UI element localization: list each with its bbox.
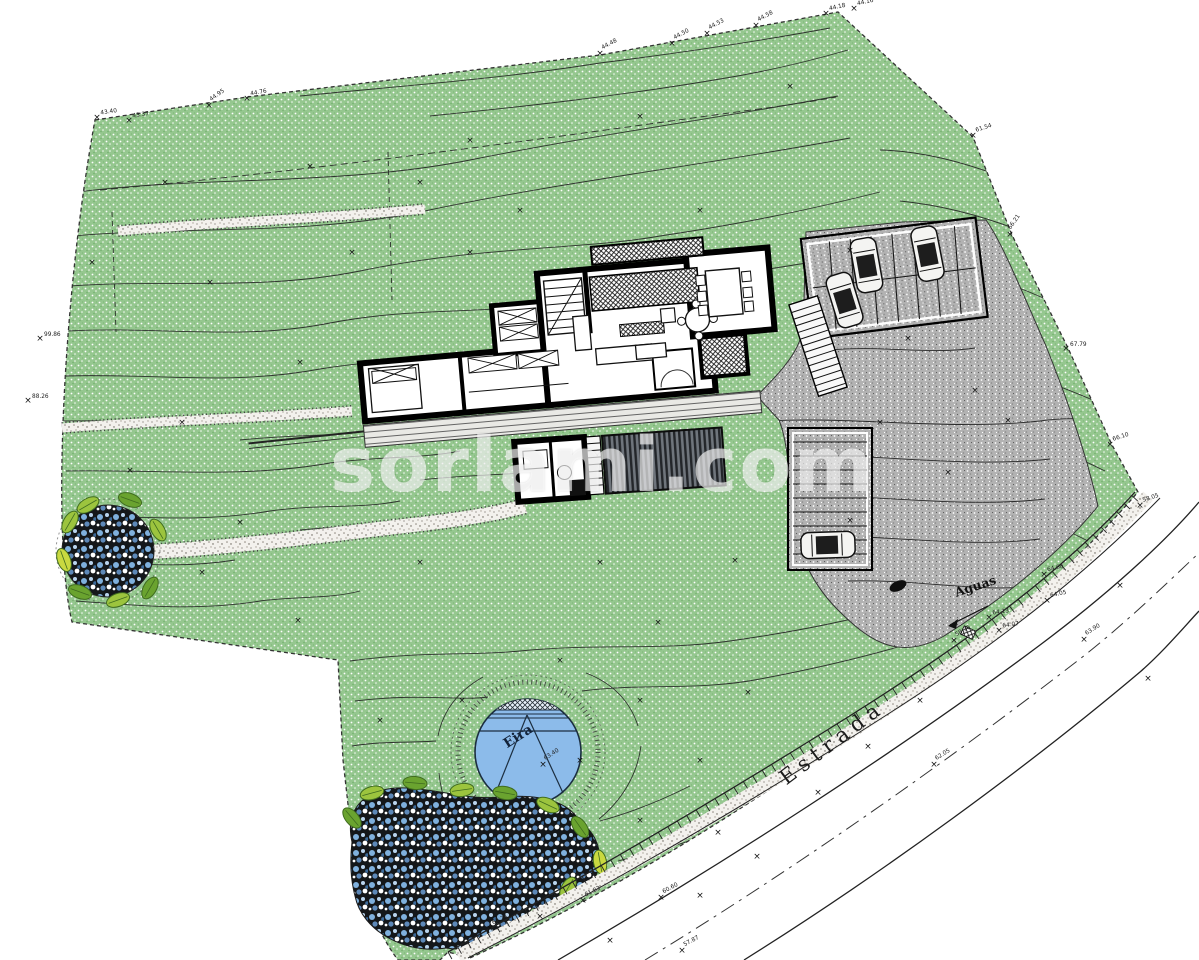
svg-text:×: × (944, 468, 952, 478)
svg-text:×: × (846, 246, 854, 256)
svg-text:×: × (606, 936, 614, 946)
svg-text:63.90: 63.90 (1084, 623, 1102, 637)
svg-text:×: × (536, 912, 544, 922)
svg-text:44.58: 44.58 (757, 10, 775, 23)
svg-text:×: × (1144, 674, 1152, 684)
svg-text:×: × (466, 136, 474, 146)
svg-text:×: × (516, 206, 524, 216)
svg-text:×: × (36, 334, 44, 344)
svg-text:×: × (696, 756, 704, 766)
svg-text:×: × (348, 248, 356, 258)
deck (602, 427, 726, 493)
svg-text:×: × (126, 466, 134, 476)
svg-text:×: × (636, 696, 644, 706)
svg-text:×: × (731, 556, 739, 566)
svg-text:×: × (236, 518, 244, 528)
svg-text:×: × (971, 386, 979, 396)
svg-text:×: × (696, 206, 704, 216)
svg-text:×: × (294, 616, 302, 626)
svg-text:67.79: 67.79 (1070, 342, 1087, 348)
svg-text:×: × (1006, 230, 1014, 240)
svg-text:×: × (596, 558, 604, 568)
svg-text:×: × (198, 568, 206, 578)
svg-text:×: × (88, 258, 96, 268)
car-icon (801, 531, 856, 559)
svg-text:×: × (296, 358, 304, 368)
svg-text:×: × (1062, 344, 1070, 354)
svg-text:×: × (846, 516, 854, 526)
dining-table (705, 268, 743, 317)
svg-text:×: × (904, 334, 912, 344)
svg-text:×: × (1116, 581, 1124, 591)
svg-text:×: × (376, 716, 384, 726)
svg-text:×: × (744, 688, 752, 698)
svg-text:×: × (306, 162, 314, 172)
svg-text:×: × (24, 396, 32, 406)
svg-text:44.16: 44.16 (857, 0, 875, 7)
svg-text:44.18: 44.18 (829, 3, 847, 12)
svg-text:×: × (161, 178, 169, 188)
svg-text:64.07: 64.07 (1002, 621, 1020, 629)
svg-text:×: × (786, 82, 794, 92)
svg-text:×: × (696, 891, 704, 901)
svg-text:×: × (636, 112, 644, 122)
svg-text:44.48: 44.48 (601, 38, 619, 51)
svg-text:×: × (985, 613, 993, 623)
svg-text:44.95: 44.95 (209, 88, 226, 103)
svg-text:×: × (125, 116, 133, 126)
site-plan-drawing: ×××××××××××××××××××××××××××××××××××××××4… (0, 0, 1199, 960)
svg-text:×: × (636, 816, 644, 826)
svg-text:×: × (714, 828, 722, 838)
svg-text:×: × (864, 742, 872, 752)
lower-parking (788, 428, 872, 570)
svg-text:43.40: 43.40 (100, 108, 118, 116)
svg-text:61.54: 61.54 (975, 123, 993, 134)
svg-text:57.87: 57.87 (683, 935, 701, 948)
svg-text:62.05: 62.05 (934, 748, 952, 762)
svg-text:66.10: 66.10 (1112, 432, 1130, 443)
svg-text:×: × (466, 248, 474, 258)
svg-text:66.21: 66.21 (1007, 213, 1022, 230)
site-plan-page: ×××××××××××××××××××××××××××××××××××××××4… (0, 0, 1199, 960)
svg-text:×: × (416, 178, 424, 188)
svg-text:99.86: 99.86 (44, 332, 61, 338)
svg-text:×: × (753, 852, 761, 862)
svg-text:×: × (814, 788, 822, 798)
svg-text:×: × (556, 656, 564, 666)
svg-text:×: × (93, 113, 101, 123)
svg-text:×: × (876, 418, 884, 428)
svg-text:×: × (576, 756, 584, 766)
svg-text:88.26: 88.26 (32, 394, 49, 400)
svg-text:×: × (416, 558, 424, 568)
svg-text:×: × (458, 696, 466, 706)
svg-text:×: × (654, 618, 662, 628)
svg-text:×: × (206, 278, 214, 288)
svg-text:44.53: 44.53 (708, 18, 726, 31)
svg-text:×: × (995, 626, 1003, 636)
svg-text:×: × (1004, 416, 1012, 426)
svg-text:×: × (916, 696, 924, 706)
bathroom (699, 334, 748, 378)
parking-block (801, 218, 988, 339)
svg-text:×: × (178, 418, 186, 428)
